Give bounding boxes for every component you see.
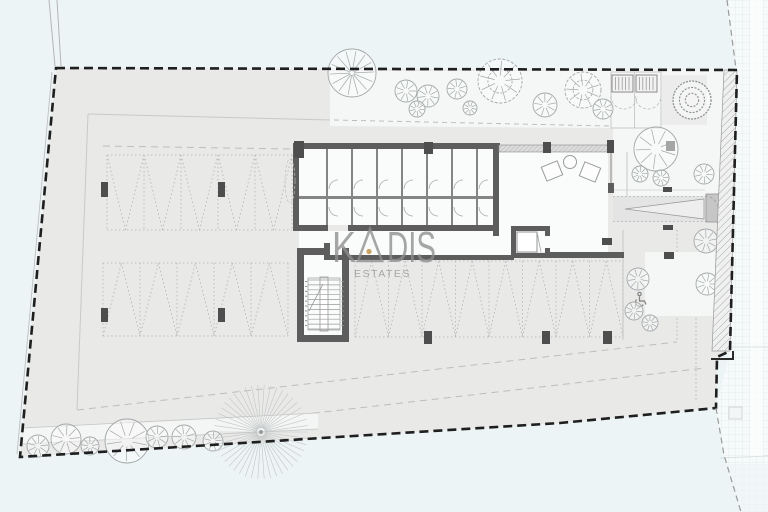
round-tree-icon [634,127,678,171]
round-tree-icon [694,229,718,253]
round-tree-icon [146,426,168,448]
column-icon [218,308,225,322]
column-icon [101,308,108,322]
round-tree-icon [105,419,149,463]
column-icon [542,331,550,344]
column-icon [218,182,225,197]
swirl-tree-icon [478,59,522,103]
column-icon [101,182,108,197]
round-tree-icon [51,424,81,454]
round-tree-icon [409,101,425,117]
column-icon [664,252,674,259]
watermark-gold-dot-icon [366,249,371,254]
column-icon [424,142,433,154]
site-plan-drawing: K DIS ESTATES [0,0,768,512]
round-tree-icon [653,170,669,186]
round-tree-icon [593,99,613,119]
column-icon [603,331,612,344]
watermark-subtitle: ESTATES [354,268,414,280]
column-icon [424,331,432,344]
round-tree-icon [203,431,223,451]
column-icon [663,187,672,192]
round-tree-icon [627,268,649,290]
round-tree-icon [694,164,714,184]
round-tree-icon [642,315,658,331]
column-icon [543,142,551,153]
round-tree-icon [463,101,477,115]
column-icon [607,140,614,153]
column-icon [602,238,612,245]
round-tree-icon [395,80,417,102]
watermark-brand-k: K [332,223,356,272]
round-tree-icon [533,93,557,117]
round-tree-icon [27,435,49,457]
column-icon [294,141,304,158]
round-tree-icon [632,166,648,182]
round-tree-icon [447,79,467,99]
bush-tree-icon [673,81,711,119]
column-icon [663,225,673,230]
watermark-brand-dis: DIS [387,223,436,272]
palm-tree-icon [328,49,376,97]
round-tree-icon [625,302,643,320]
floor-plan-canvas: K DIS ESTATES [0,0,768,512]
